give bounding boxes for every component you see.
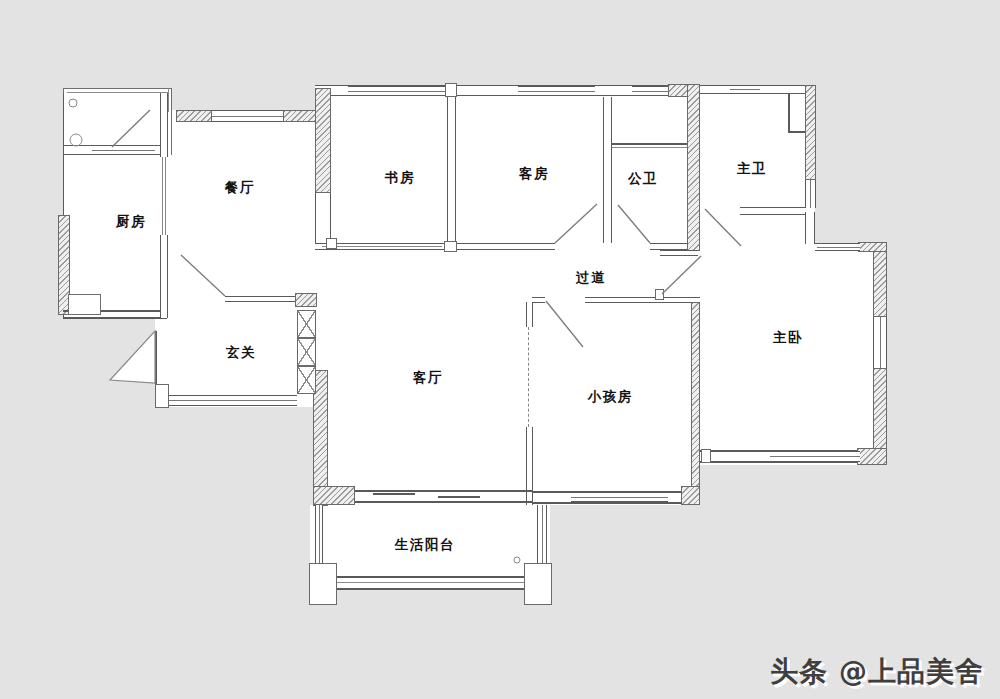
- room-label-kitchen: 厨房: [116, 213, 146, 231]
- door-foyer-swing: [181, 255, 225, 296]
- fixture-circle-large: [70, 134, 82, 146]
- room-label-master-bath: 主卫: [737, 160, 767, 178]
- door-swing-overlay: [0, 0, 1000, 699]
- room-label-study: 书房: [385, 169, 415, 187]
- fixture-circle-small: [69, 99, 77, 107]
- balcony-drain: [514, 557, 520, 563]
- door-master-swing: [662, 256, 701, 294]
- room-label-life-balcony: 生活阳台: [395, 536, 455, 554]
- door-master-bath-swing: [705, 209, 741, 246]
- room-label-master-bedroom: 主卧: [773, 329, 803, 347]
- door-kids-swing: [546, 301, 583, 347]
- watermark-text: 头条 @上品美舍: [770, 653, 984, 691]
- room-label-foyer: 玄关: [226, 344, 256, 362]
- door-public-bath-swing: [618, 205, 650, 243]
- door-laundry-swing: [112, 110, 150, 147]
- room-label-corridor: 过道: [576, 269, 606, 287]
- door-entrance-swing: [110, 331, 155, 383]
- room-label-living-room: 客厅: [413, 369, 443, 387]
- room-label-guest-room: 客房: [519, 165, 549, 183]
- floor-plan-canvas: 厨房 餐厅 书房 客房 公卫 主卫 过道 玄关 客厅 小孩房 主卧 生活阳台 头…: [0, 0, 1000, 699]
- door-guest-swing: [555, 204, 597, 243]
- room-label-public-bath: 公卫: [628, 170, 658, 188]
- room-label-dining: 餐厅: [225, 179, 255, 197]
- room-label-kids-room: 小孩房: [588, 388, 633, 406]
